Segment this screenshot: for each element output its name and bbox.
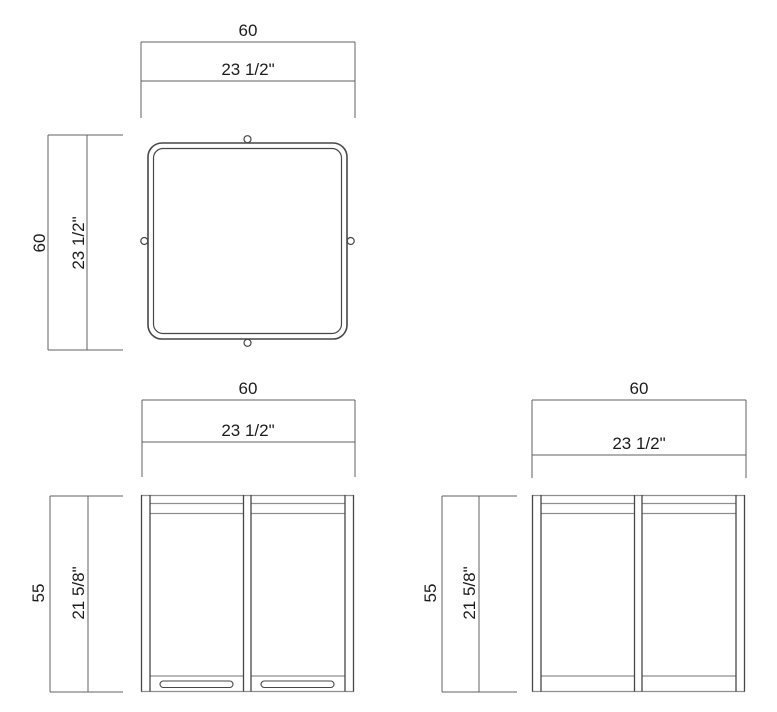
front-view-legs-and-divider	[142, 495, 354, 692]
tabletop-outer-edge	[148, 143, 347, 339]
front-view-width-units-label: 60	[239, 379, 258, 398]
front-view: 60 23 1/2" 55 21 5/8"	[29, 379, 355, 692]
front-view-left-slot	[160, 681, 233, 688]
side-view-height-inches-label: 21 5/8"	[460, 566, 479, 619]
front-view-height-inches-label: 21 5/8"	[69, 566, 88, 619]
side-view-height-units-label: 55	[421, 584, 440, 603]
front-view-horizontal-edges	[141, 496, 354, 692]
top-view-width-units-label: 60	[239, 21, 258, 40]
side-view-legs-and-divider	[533, 495, 745, 692]
top-view-width-inches-label: 23 1/2"	[221, 60, 274, 79]
knob-left	[141, 238, 148, 245]
front-view-height-units-label: 55	[29, 584, 48, 603]
side-view-width-units-label: 60	[630, 379, 649, 398]
top-view: 60 23 1/2" 60 23 1/2"	[30, 21, 355, 350]
side-view: 60 23 1/2" 55 21 5/8"	[421, 379, 746, 692]
tabletop-inner-edge	[154, 149, 342, 334]
side-view-height-dimension-lines	[442, 496, 517, 692]
knob-right	[347, 238, 354, 245]
side-view-width-inches-label: 23 1/2"	[612, 434, 665, 453]
top-view-width-dimension-lines	[141, 42, 355, 118]
side-view-horizontal-edges	[532, 496, 745, 692]
top-view-height-inches-label: 23 1/2"	[69, 216, 88, 269]
technical-drawing: 60 23 1/2" 60 23 1/2" 60 23 1/2" 55 21 5…	[0, 0, 777, 712]
front-view-right-slot	[261, 681, 334, 688]
front-view-width-inches-label: 23 1/2"	[221, 421, 274, 440]
drawing-sheet: 60 23 1/2" 60 23 1/2" 60 23 1/2" 55 21 5…	[0, 0, 777, 712]
knob-top	[244, 136, 251, 143]
knob-bottom	[244, 339, 251, 346]
top-view-height-units-label: 60	[30, 234, 49, 253]
